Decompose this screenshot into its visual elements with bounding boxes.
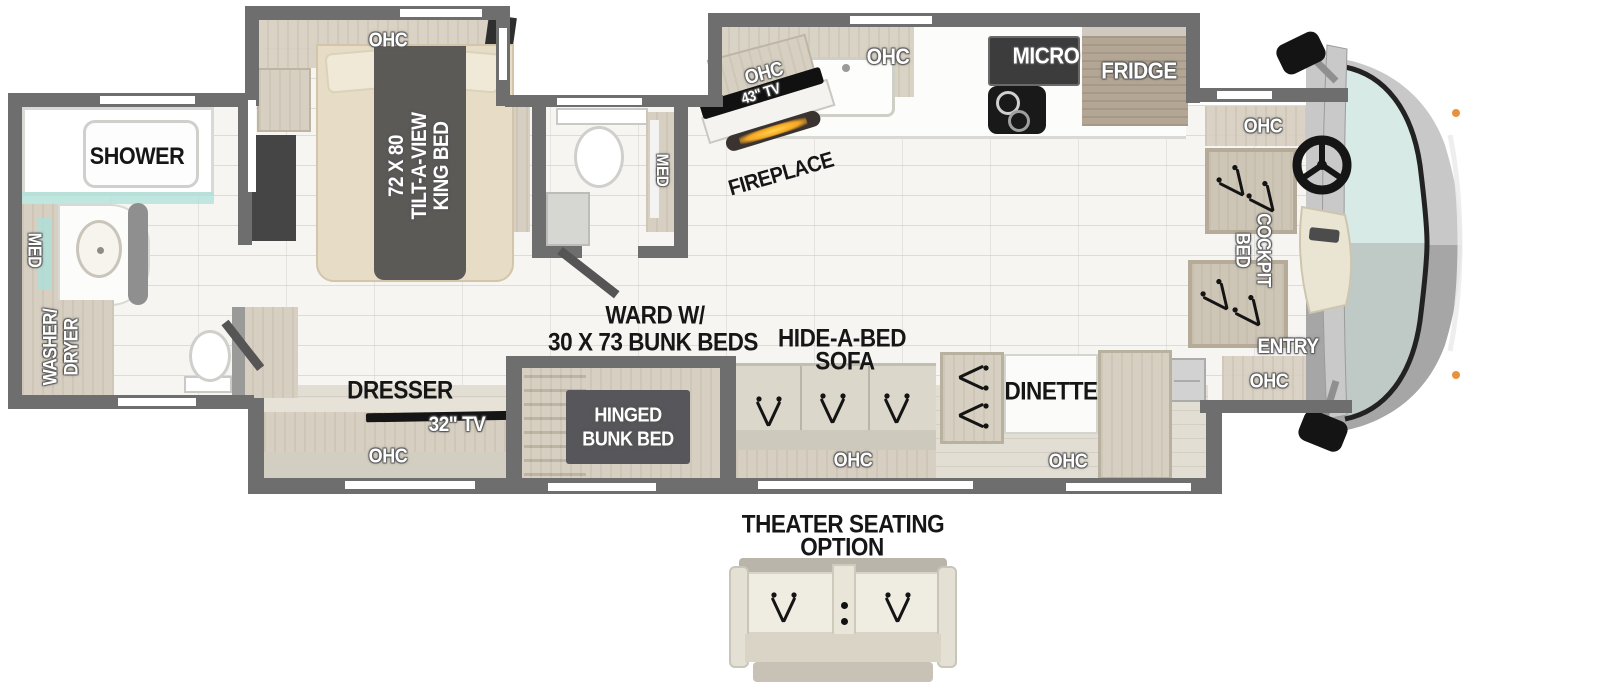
cushion-mark [881, 592, 915, 624]
king-bed-line3: KING BED [431, 112, 454, 219]
theater-seat-unit [729, 556, 959, 689]
cushion-mark [957, 399, 989, 433]
dinette-ohc-label: OHC [1049, 451, 1088, 474]
sofa-seam [800, 366, 802, 436]
cockpit-ohc-top-label: OHC [1244, 116, 1283, 139]
shower-glass [22, 192, 214, 204]
window [557, 98, 642, 105]
shower-label: SHOWER [90, 143, 185, 171]
wall-midbath-left [532, 95, 546, 255]
window [758, 481, 973, 489]
ward-label-line2: 30 X 73 BUNK BEDS [548, 329, 758, 358]
washer-dryer-line1: WASHER/ [41, 309, 62, 386]
wall-midbath-bottom-right [638, 246, 688, 258]
sofa-ohc-label: OHC [834, 450, 873, 473]
theater-label-line2: OPTION [800, 534, 884, 563]
cushion-mark [880, 393, 914, 425]
burner-2 [1008, 110, 1030, 132]
window [1217, 91, 1272, 99]
sofa-seam [868, 366, 870, 436]
mid-toilet-tank [556, 108, 648, 125]
marker-light-top [1452, 109, 1460, 117]
window [100, 96, 195, 104]
dashboard [1300, 207, 1351, 313]
cupholder [841, 602, 848, 609]
wall-bedroom-slide-left [245, 6, 259, 106]
cockpit-ohc-bottom-label: OHC [1250, 371, 1289, 394]
cushion-mark [816, 393, 850, 425]
bedroom-ohc-label: OHC [369, 30, 408, 53]
window [850, 16, 932, 24]
washer-dryer-label: WASHER/ DRYER [41, 309, 82, 386]
entry-label: ENTRY [1257, 335, 1318, 359]
vanity-edge [128, 203, 148, 305]
king-bed-label: 72 X 80 TILT-A-VIEW KING BED [386, 112, 454, 219]
dresser-ohc-label: OHC [369, 446, 408, 469]
bunk-label-line1: HINGED [594, 405, 661, 428]
tv-32-label: 32" TV [429, 413, 486, 437]
cockpit-bed-line2: BED [1231, 213, 1252, 287]
wall-kitchen-slide-top [708, 13, 1200, 27]
floorplan-canvas: 43" TV [0, 0, 1600, 689]
window [1066, 483, 1191, 491]
bedroom-nightstand [257, 68, 311, 132]
med-mid-label: MED [652, 154, 672, 187]
cushion-mark [767, 592, 801, 624]
marker-light-bottom [1452, 371, 1460, 379]
cushion-mark [957, 361, 989, 395]
sofa-seat [736, 430, 936, 450]
window [345, 481, 475, 489]
king-bed-line1: 72 X 80 [386, 112, 409, 219]
window [400, 9, 482, 17]
cushion-mark [752, 396, 786, 428]
cupholder [841, 618, 848, 625]
cooktop [988, 86, 1046, 134]
wall-entry-bottom [1200, 400, 1352, 413]
window [118, 398, 196, 406]
rear-closet [232, 307, 298, 401]
wall-kitchen-slide-left [708, 13, 722, 103]
bunk-label-line2: BUNK BED [582, 429, 673, 452]
window [499, 28, 507, 80]
med-rear-label: MED [24, 233, 45, 268]
theater-seat-band [745, 634, 941, 662]
sofa-label-line2: SOFA [815, 348, 874, 377]
theater-base [753, 662, 933, 682]
king-bed-line2: TILT-A-VIEW [409, 112, 432, 219]
bedroom-tv-panel [252, 135, 296, 241]
bath-sink [76, 220, 122, 278]
wall-midbath-right [674, 95, 688, 255]
cockpit-bed-line1: COCKPIT [1252, 213, 1273, 287]
fridge-label: FRIDGE [1101, 58, 1177, 85]
window [248, 100, 256, 192]
wall-rear-end [8, 93, 22, 409]
micro-label: MICRO [1013, 43, 1080, 70]
dresser-label: DRESSER [347, 377, 453, 406]
window [548, 483, 656, 491]
kitchen-ohc-label: OHC [867, 44, 910, 70]
wall-bunk-top [506, 356, 736, 368]
mid-toilet-bowl [574, 126, 624, 188]
kitchen-faucet [842, 64, 850, 72]
rear-toilet-bowl [189, 330, 231, 382]
cockpit-bed-label: COCKPIT BED [1231, 213, 1272, 287]
wall-bunk-left [506, 356, 522, 482]
wall-bunk-right [720, 356, 736, 482]
sink-drain [97, 247, 104, 254]
ward-label-line1: WARD W/ [605, 302, 704, 331]
dinette-label: DINETTE [1004, 378, 1097, 407]
mid-bath-cabinet [546, 192, 590, 246]
washer-dryer-line2: DRYER [62, 309, 83, 386]
